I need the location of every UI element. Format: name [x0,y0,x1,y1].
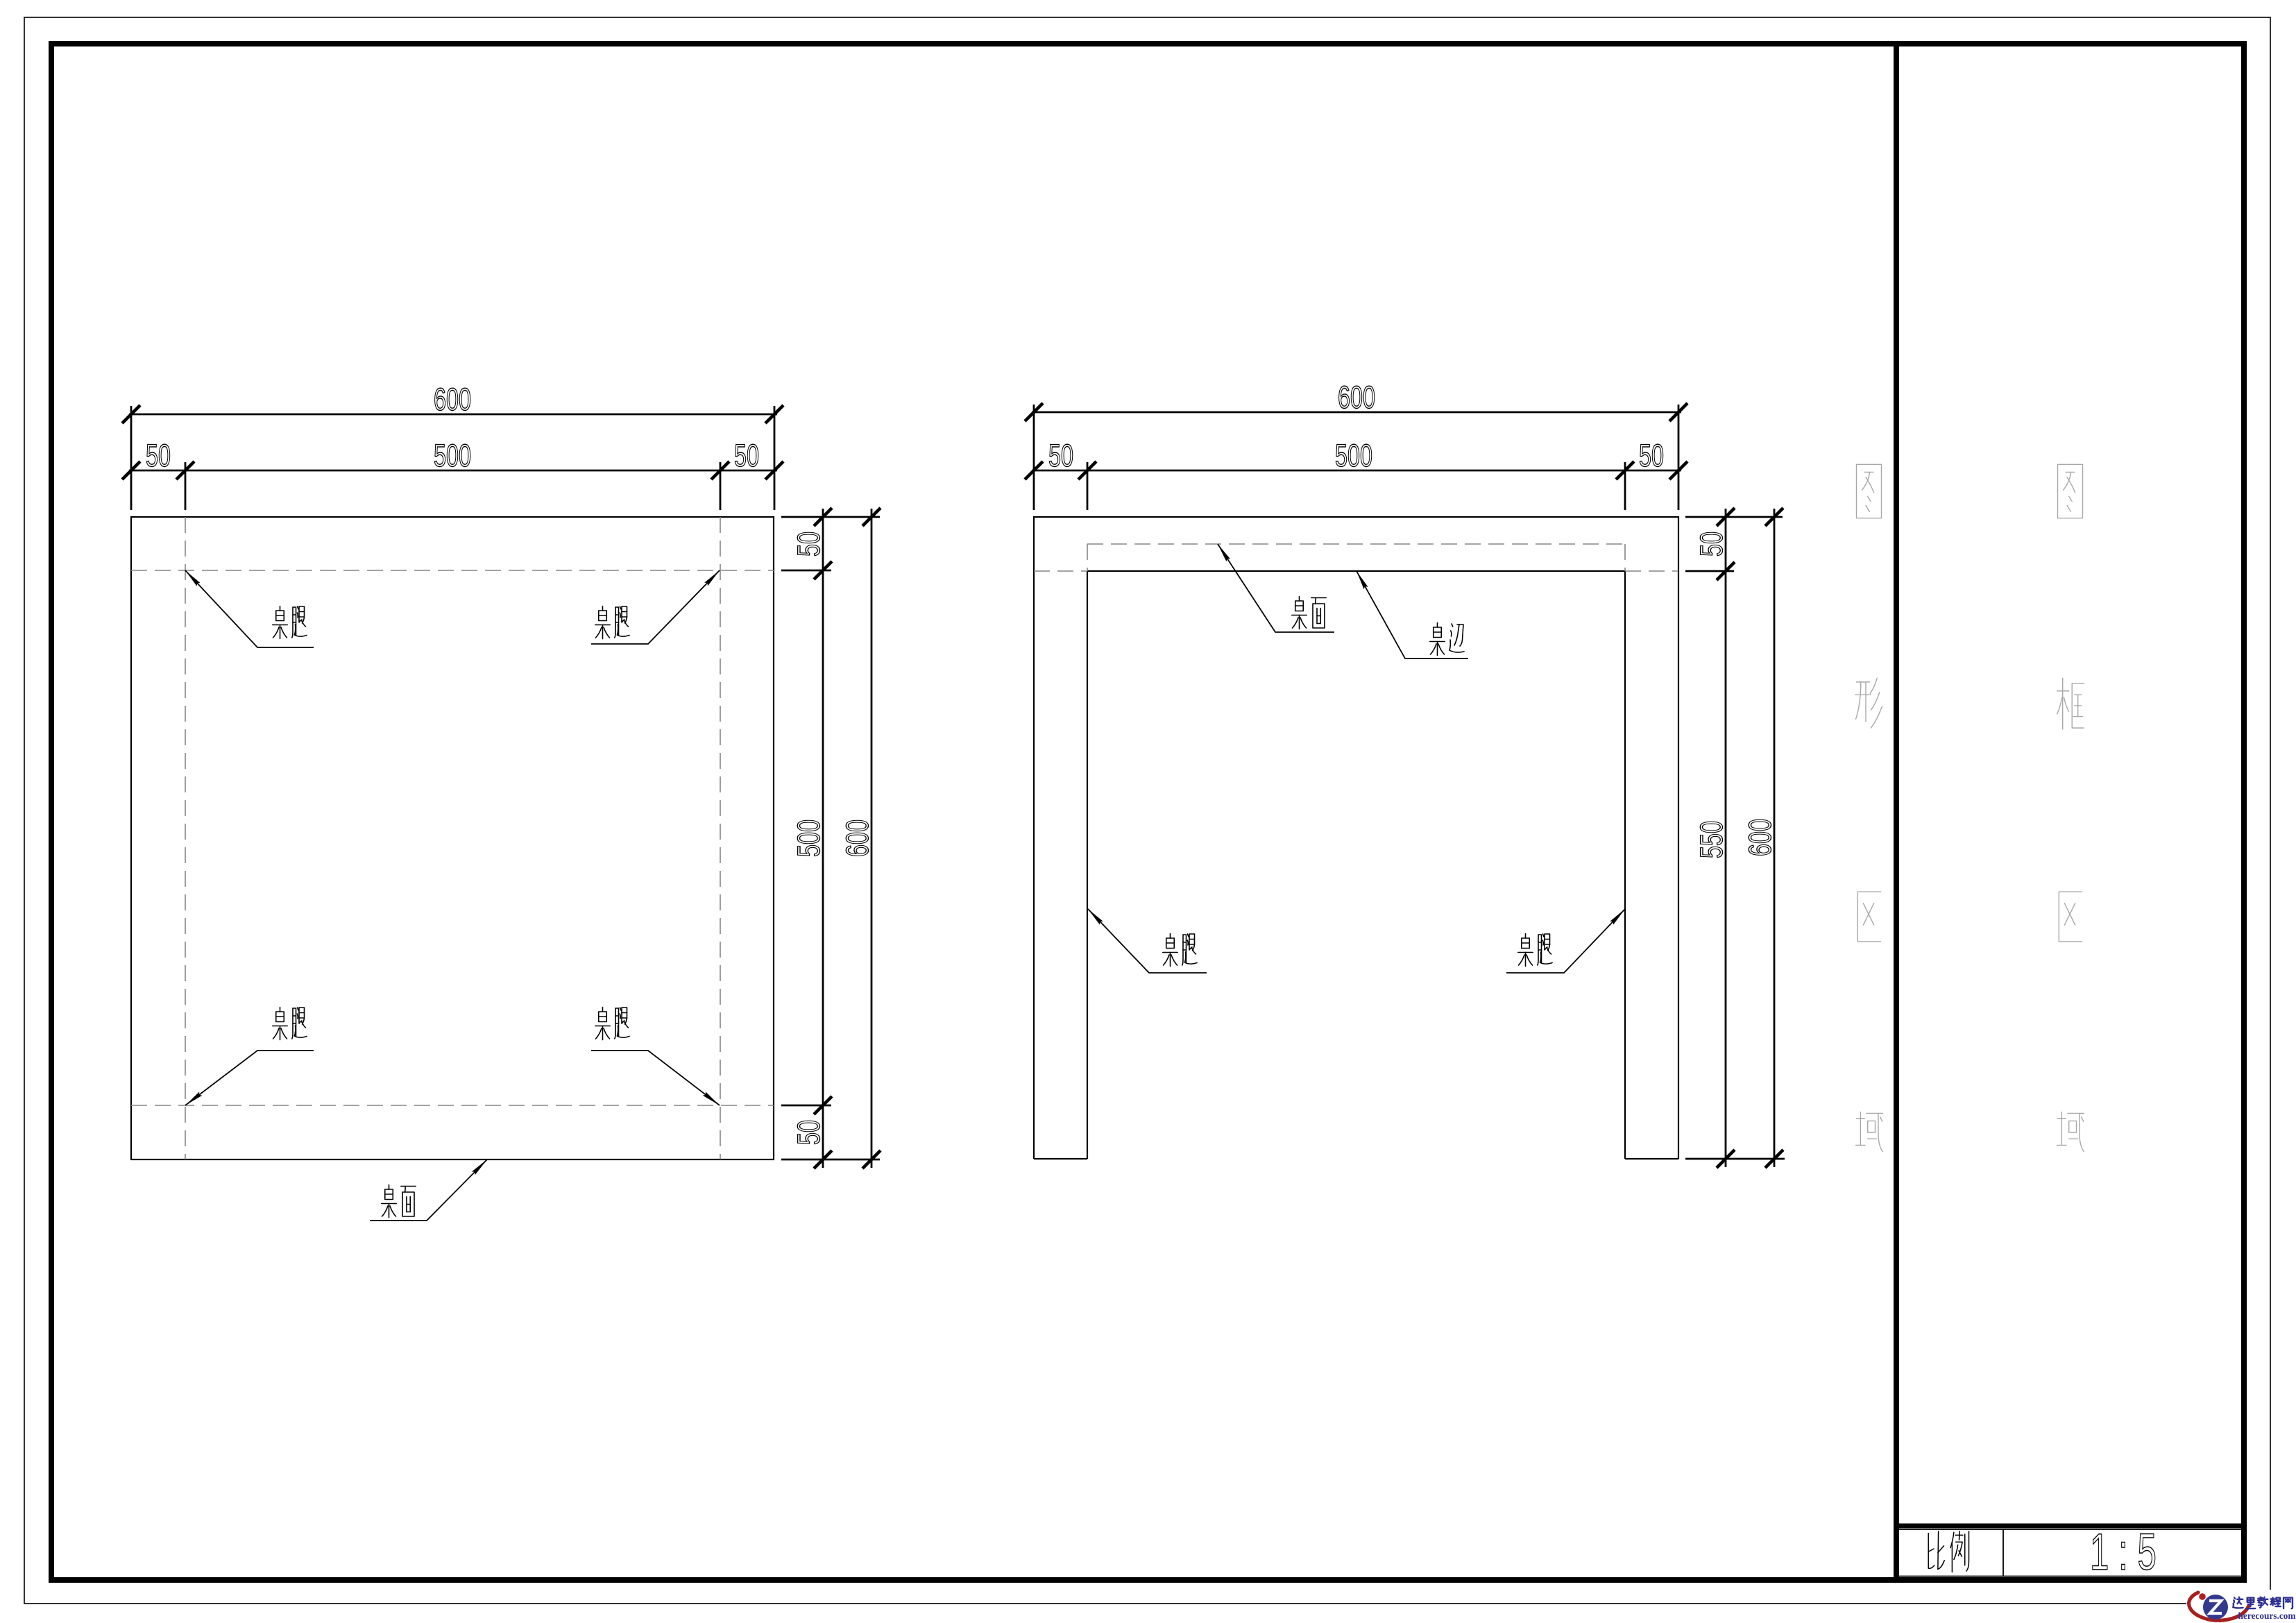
svg-text:50: 50 [791,532,826,556]
svg-text:50: 50 [1639,438,1664,473]
svg-text:1 : 5: 1 : 5 [2090,1523,2157,1581]
svg-text:600: 600 [434,382,471,417]
svg-text:50: 50 [1048,438,1073,473]
svg-text:600: 600 [1742,819,1778,856]
svg-text:600: 600 [1338,380,1375,415]
svg-text:50: 50 [1694,532,1729,556]
svg-text:500: 500 [434,438,471,473]
svg-text:600: 600 [840,819,875,857]
svg-text:50: 50 [734,438,759,473]
svg-text:50: 50 [146,438,171,473]
svg-text:herecours.com: herecours.com [2238,1611,2296,1622]
svg-text:50: 50 [791,1120,826,1145]
svg-text:500: 500 [791,819,826,857]
svg-text:500: 500 [1335,438,1372,473]
svg-text:550: 550 [1694,821,1729,858]
